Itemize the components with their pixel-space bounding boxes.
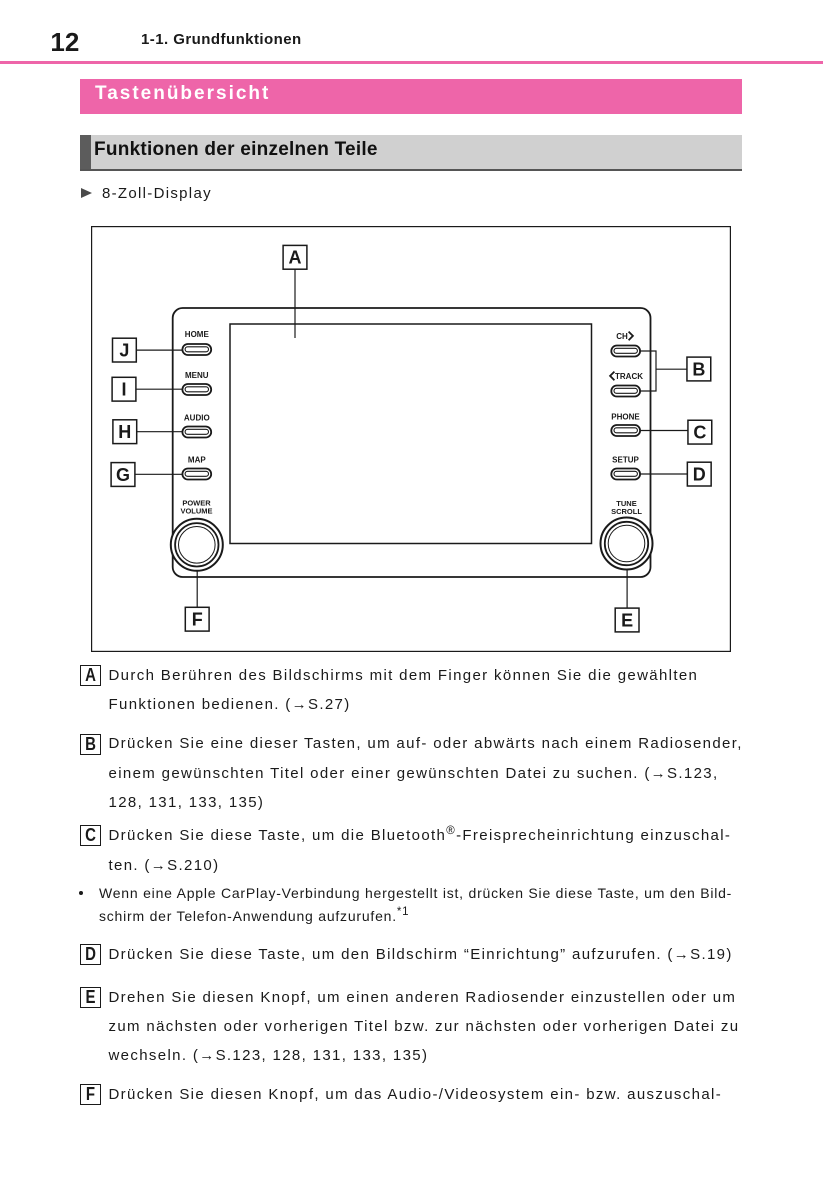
svg-text:MAP: MAP: [188, 456, 206, 465]
svg-text:VOLUME: VOLUME: [180, 507, 212, 516]
svg-text:TRACK: TRACK: [615, 372, 643, 381]
svg-text:B: B: [692, 360, 705, 380]
svg-text:I: I: [121, 380, 126, 400]
svg-text:A: A: [289, 248, 302, 268]
svg-text:AUDIO: AUDIO: [184, 414, 210, 423]
svg-text:G: G: [116, 465, 130, 485]
svg-text:E: E: [621, 611, 633, 631]
svg-text:C: C: [693, 423, 706, 443]
svg-text:CH: CH: [616, 332, 628, 341]
svg-text:SETUP: SETUP: [612, 456, 639, 465]
svg-text:D: D: [693, 465, 706, 485]
svg-text:SCROLL: SCROLL: [611, 507, 642, 516]
svg-text:H: H: [118, 422, 131, 442]
svg-text:J: J: [119, 341, 129, 361]
svg-text:MENU: MENU: [185, 371, 209, 380]
svg-text:HOME: HOME: [185, 330, 210, 339]
svg-text:F: F: [192, 610, 203, 630]
svg-text:PHONE: PHONE: [611, 413, 640, 422]
